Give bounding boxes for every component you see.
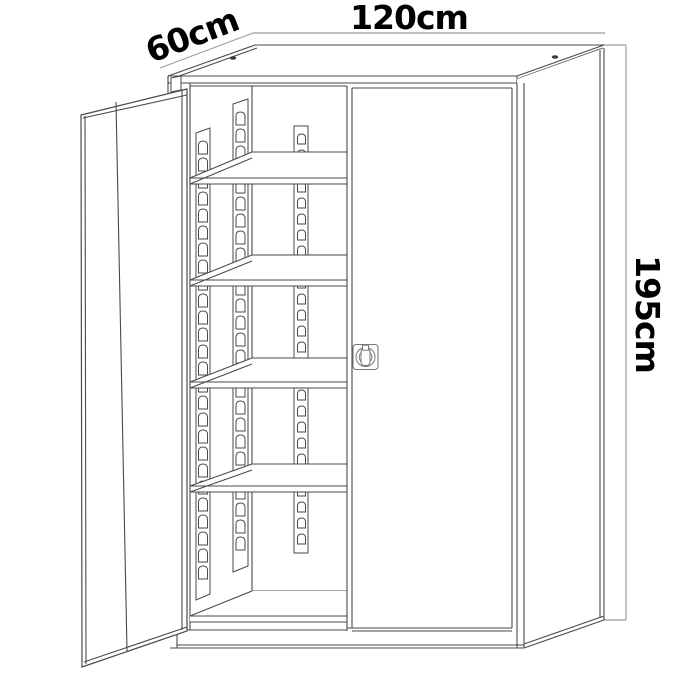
shelf-3	[190, 358, 347, 388]
height-dimension-label: 195cm	[628, 255, 667, 373]
lock-icon	[353, 345, 378, 370]
cabinet-floor	[190, 591, 347, 622]
cabinet-drawing-svg: 120cm 60cm 195cm	[0, 0, 700, 700]
shelf-4	[190, 464, 347, 492]
right-side-panel	[517, 48, 604, 648]
cabinet-diagram: 120cm 60cm 195cm	[0, 0, 700, 700]
left-door-open	[81, 76, 187, 667]
width-dimension-label: 120cm	[350, 0, 468, 37]
shelf-1	[190, 152, 347, 184]
shelf-2	[190, 255, 347, 286]
